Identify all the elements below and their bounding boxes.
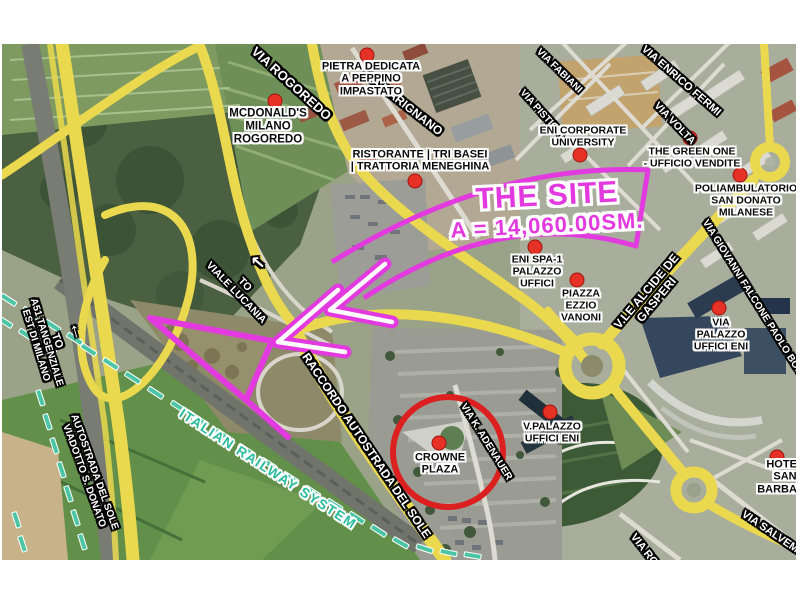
marker-crowne-plaza [432,436,446,450]
marker-the-green-one [683,131,697,145]
marker-poliambulatorio [733,168,747,182]
marker-mcdonalds [268,94,282,108]
marker-eni-corporate-university [573,148,587,162]
satellite-canvas [2,44,796,560]
marker-pietra-dedicata [360,48,374,62]
satellite-map: VIA ROGOREDO VIA MARIGNANO VIA FABIANI V… [2,44,796,560]
marker-piazza-vanoni [570,273,584,287]
marker-eni-spa-1 [528,240,542,254]
marker-hotel-san-barbara [770,450,784,464]
map-screenshot: VIA ROGOREDO VIA MARIGNANO VIA FABIANI V… [0,0,800,600]
marker-v-palazzo-uffici-eni [543,405,557,419]
marker-via-palazzo-uffici-eni [712,301,726,315]
marker-ristorante [408,174,422,188]
